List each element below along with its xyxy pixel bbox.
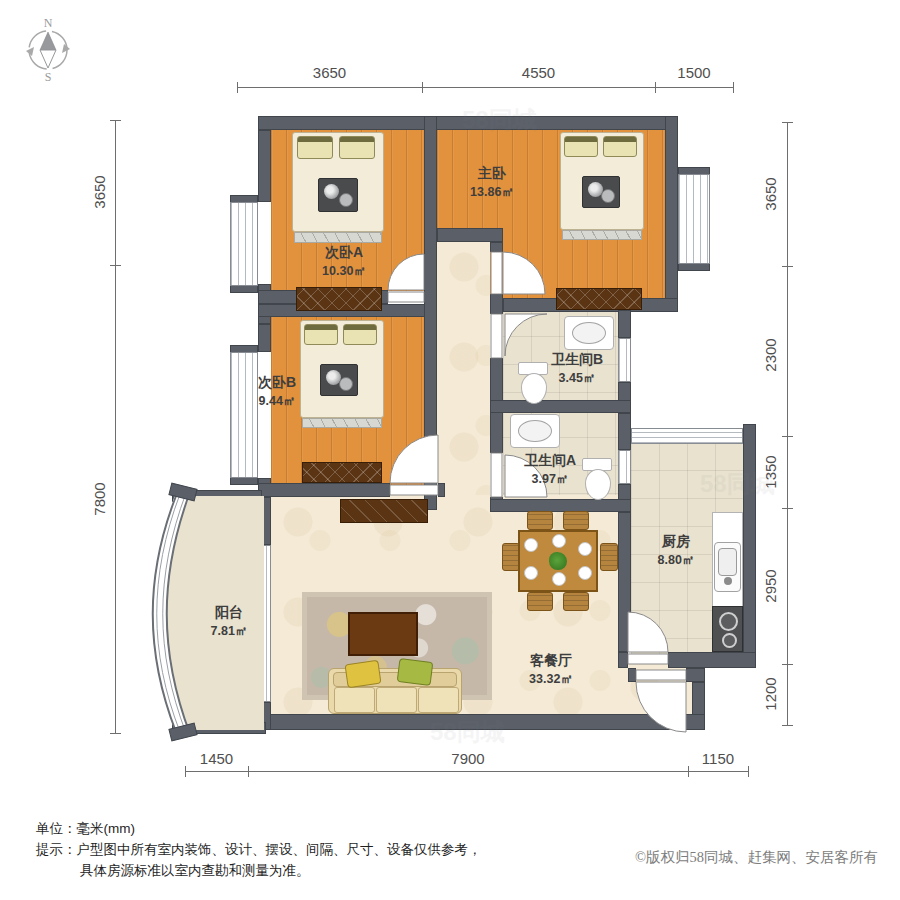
wardrobe-master	[556, 288, 642, 310]
dim-tick	[110, 265, 121, 266]
balcony-sliding-door	[258, 545, 271, 702]
room-name: 次卧B	[258, 374, 296, 392]
wall	[230, 477, 258, 485]
room-label-kitchen: 厨房 8.80㎡	[658, 533, 695, 569]
wall-bathroom-a-bottom	[490, 499, 631, 512]
sofa-pillow-green	[397, 658, 434, 686]
bay-window-bedroom-b	[230, 352, 258, 478]
toilet-bowl	[585, 469, 611, 500]
stove-burner	[722, 633, 737, 648]
dim-label: 2300	[762, 338, 779, 371]
dim-line-bottom	[185, 771, 748, 772]
dim-tick	[782, 122, 793, 123]
unit-line: 单位：毫米(mm)	[36, 818, 482, 839]
compass-north-label: N	[44, 16, 53, 30]
sink-bathroom-b	[564, 316, 614, 350]
balcony-window-pane	[157, 494, 180, 732]
wall	[438, 483, 445, 497]
bay-window-master	[678, 174, 710, 264]
compass-south-label: S	[45, 70, 52, 84]
room-name: 厨房	[658, 533, 695, 551]
wall	[258, 130, 271, 202]
quilt	[582, 176, 620, 208]
room-area: 13.86㎡	[470, 184, 514, 201]
watermark: 58同城	[430, 716, 505, 748]
room-label-master: 主卧 13.86㎡	[470, 165, 514, 201]
toilet-bathroom-a	[582, 458, 612, 500]
balcony-window-edge	[167, 492, 190, 734]
wall-bedroom-b-bottom	[258, 483, 390, 497]
room-area: 7.81㎡	[211, 623, 248, 640]
room-area: 3.45㎡	[551, 370, 603, 387]
sofa-pillow-yellow	[344, 660, 381, 688]
wall	[618, 310, 631, 338]
balcony-curved-window	[159, 494, 183, 732]
compass: N S	[26, 16, 70, 84]
plate	[578, 566, 592, 580]
wall	[618, 413, 631, 450]
sofa-cushion	[418, 687, 459, 713]
wall	[628, 668, 636, 682]
wall-corridor-top	[437, 228, 503, 242]
wall	[618, 652, 628, 668]
dim-line-right	[787, 122, 788, 725]
table-plant	[549, 552, 567, 570]
plate	[578, 542, 592, 556]
window-bathroom-b	[618, 338, 631, 382]
dim-label: 3650	[762, 177, 779, 210]
unit-value: 毫米(mm)	[77, 821, 135, 836]
pillow	[297, 136, 333, 159]
room-area: 9.44㎡	[258, 393, 296, 410]
tip-line-2: 具体房源标准以室内查勘和测量为准。	[36, 860, 482, 881]
dim-label: 1150	[688, 750, 748, 767]
dim-tick	[782, 725, 793, 726]
dim-line-top	[237, 87, 733, 88]
floorplan-canvas: N S 58同城 58同城 58同城 主卧 13.86㎡ 次卧A 10.30㎡ …	[0, 0, 900, 900]
wall	[678, 263, 710, 271]
dim-label: 2950	[762, 569, 779, 602]
dim-tick	[782, 508, 793, 509]
room-name: 客餐厅	[529, 652, 573, 670]
dining-chair	[527, 592, 553, 611]
stove-burner	[719, 612, 738, 631]
dim-label: 4550	[422, 64, 655, 81]
dim-tick	[748, 766, 749, 777]
room-name: 卫生间B	[551, 351, 603, 369]
kitchen-sink	[714, 542, 741, 592]
unit-label: 单位：	[36, 821, 77, 836]
dim-tick	[248, 766, 249, 777]
dim-tick	[655, 82, 656, 93]
room-label-living-dining: 客餐厅 33.32㎡	[529, 652, 573, 688]
plate	[552, 572, 566, 586]
wall-bath-divider	[490, 400, 631, 413]
window-kitchen-top	[631, 428, 743, 444]
dim-label: 7800	[91, 482, 108, 515]
wall	[490, 294, 503, 314]
wall	[686, 668, 705, 682]
toilet-bowl	[521, 373, 547, 404]
wall	[258, 324, 271, 352]
dim-tick	[688, 766, 689, 777]
wall	[258, 497, 271, 545]
dining-chair	[527, 511, 553, 530]
compass-arrow	[26, 47, 34, 56]
room-label-bathroom-b: 卫生间B 3.45㎡	[551, 351, 603, 387]
room-area: 8.80㎡	[658, 552, 695, 569]
dim-tick	[237, 82, 238, 93]
dim-tick	[782, 436, 793, 437]
tv-cabinet	[340, 499, 428, 523]
bed-bench	[294, 232, 382, 243]
wall-kitchen-left	[618, 512, 631, 652]
tip-text-2: 具体房源标准以室内查勘和测量为准。	[80, 863, 310, 878]
room-name: 主卧	[470, 165, 514, 183]
wall-balcony-top	[172, 490, 262, 502]
coffee-table	[348, 612, 418, 656]
room-name: 阳台	[211, 604, 248, 622]
room-label-bedroom-a: 次卧A 10.30㎡	[322, 244, 366, 280]
wall	[230, 285, 258, 293]
room-label-balcony: 阳台 7.81㎡	[211, 604, 248, 640]
pillow	[603, 136, 637, 157]
dim-tick	[185, 766, 186, 777]
compass-arrow	[62, 44, 70, 53]
dining-chair	[563, 592, 589, 611]
wall-master-right	[665, 116, 678, 312]
door-leaf	[388, 292, 424, 302]
door-leaf	[491, 314, 502, 358]
pillow	[564, 136, 598, 157]
dim-tick	[733, 82, 734, 93]
pillow	[343, 324, 377, 345]
toilet-bathroom-b	[518, 362, 548, 404]
dim-tick	[782, 664, 793, 665]
bed-bench	[562, 230, 642, 240]
dim-label: 1200	[762, 677, 779, 710]
balcony-plant	[190, 510, 232, 552]
wall-corridor-left	[424, 116, 437, 510]
sofa-cushion	[376, 687, 417, 713]
dim-tick	[110, 733, 121, 734]
compass-needle-north	[40, 32, 56, 50]
room-area: 3.97㎡	[524, 471, 576, 488]
wall-balcony-bottom	[172, 722, 266, 734]
quilt	[320, 364, 358, 396]
wall-kitchen-right	[743, 424, 756, 668]
compass-ring	[29, 31, 67, 69]
dim-label: 3650	[237, 64, 422, 81]
kitchen-stove	[712, 606, 743, 652]
room-area: 10.30㎡	[322, 263, 366, 280]
dim-tick	[110, 120, 121, 121]
bay-window-bedroom-a	[230, 202, 258, 286]
dim-label: 3650	[91, 175, 108, 208]
dim-label: 1500	[655, 64, 733, 81]
dim-label: 1450	[185, 750, 248, 767]
room-name: 卫生间A	[524, 452, 576, 470]
footer-notes: 单位：毫米(mm) 提示：户型图中所有室内装饰、设计、摆设、间隔、尺寸、设备仅供…	[36, 818, 482, 881]
wardrobe-bedroom-b	[302, 462, 382, 483]
bed-bench	[302, 418, 382, 428]
dim-label: 7900	[248, 750, 688, 767]
floor-corridor	[437, 240, 490, 510]
dim-line-left	[115, 120, 116, 733]
pillow	[339, 136, 375, 159]
plate	[524, 566, 538, 580]
tip-label: 提示：	[36, 842, 77, 857]
plate	[552, 534, 566, 548]
quilt	[318, 178, 358, 212]
tip-line-1: 提示：户型图中所有室内装饰、设计、摆设、间隔、尺寸、设备仅供参考，	[36, 839, 482, 860]
compass-needle-south	[40, 50, 56, 68]
wardrobe-bedroom-a	[296, 287, 382, 311]
wall	[490, 242, 503, 252]
room-label-bedroom-b: 次卧B 9.44㎡	[258, 374, 296, 410]
balcony-plant	[194, 676, 236, 720]
tip-text-1: 户型图中所有室内装饰、设计、摆设、间隔、尺寸、设备仅供参考，	[77, 842, 482, 857]
wall	[668, 652, 756, 668]
room-area: 33.32㎡	[529, 671, 573, 688]
watermark: 58同城	[462, 104, 537, 136]
window-bathroom-a	[618, 450, 631, 484]
room-name: 次卧A	[322, 244, 366, 262]
copyright-notice: ©版权归58同城、赶集网、安居客所有	[635, 848, 878, 867]
room-label-bathroom-a: 卫生间A 3.97㎡	[524, 452, 576, 488]
balcony-window-pane	[163, 493, 186, 733]
dining-chair	[600, 543, 618, 571]
dim-tick	[422, 82, 423, 93]
plate	[524, 538, 538, 552]
sink-bathroom-a	[510, 414, 560, 448]
dim-tick	[782, 266, 793, 267]
sofa-cushion	[334, 687, 375, 713]
dim-label: 1350	[762, 455, 779, 488]
balcony-window-edge	[153, 496, 176, 732]
door-leaf	[491, 453, 502, 497]
pillow	[304, 324, 338, 345]
dining-chair	[563, 511, 589, 530]
